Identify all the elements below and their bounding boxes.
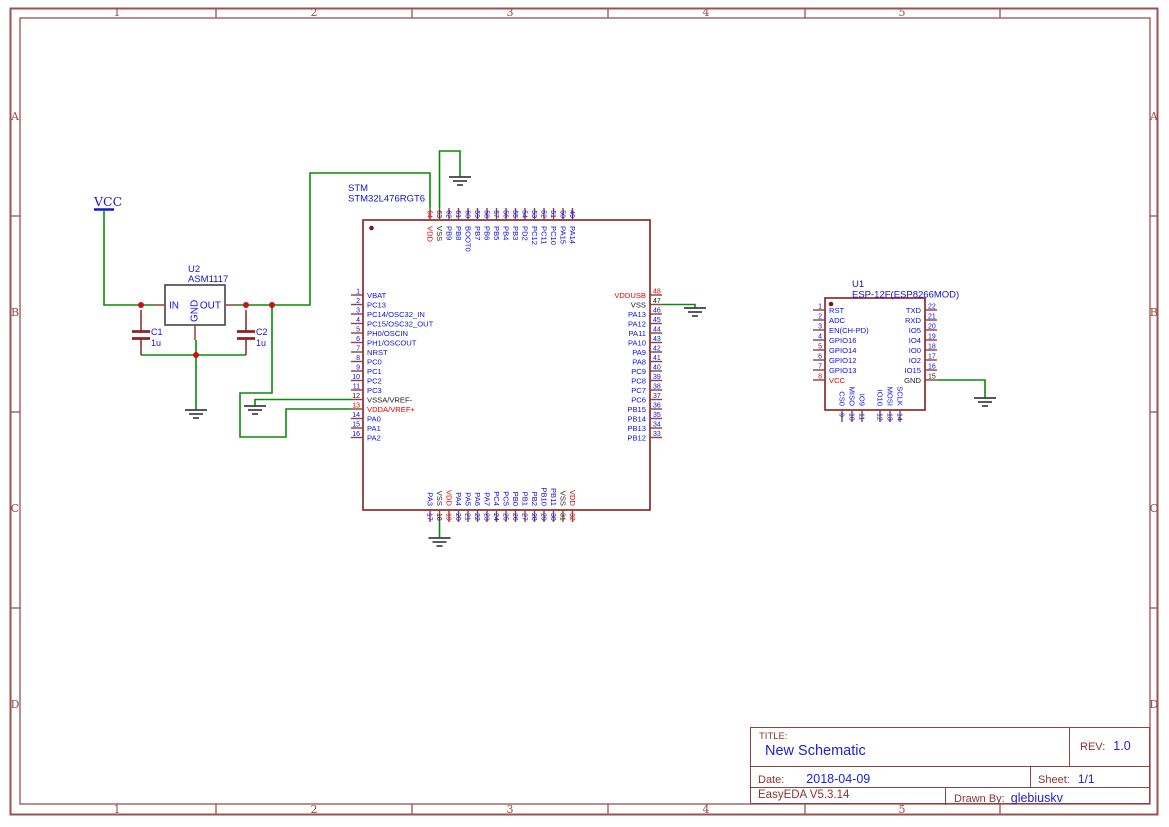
- pin-number: 51: [549, 210, 556, 218]
- pin-number: 15: [352, 422, 360, 429]
- pin-number: 32: [568, 513, 575, 521]
- pin-number: 12: [876, 413, 883, 421]
- pin-name: IO5: [909, 326, 921, 335]
- pin-number: 42: [653, 346, 661, 353]
- component-designator: U1: [852, 279, 864, 290]
- pin-name: MOSI: [886, 387, 895, 406]
- pin-number: 46: [653, 308, 661, 315]
- title-label: TITLE:: [759, 731, 788, 742]
- pin-name: NRST: [367, 348, 388, 357]
- capacitor-ref: C1: [151, 327, 163, 337]
- junction-dot: [243, 302, 249, 308]
- pin-name: GND: [904, 376, 921, 385]
- pin-number: 16: [352, 431, 360, 438]
- wire: [104, 211, 153, 305]
- wire: [240, 305, 351, 437]
- pin-number: 39: [653, 374, 661, 381]
- pin-name: GPIO12: [829, 356, 856, 365]
- pin-name: PA13: [628, 310, 646, 319]
- pin-name: PA12: [628, 320, 646, 329]
- pin-number: 18: [435, 513, 442, 521]
- pin-name: VDD: [568, 490, 577, 507]
- pin-number: 24: [492, 513, 499, 521]
- pin-name: PB2: [530, 492, 539, 506]
- pin-number: 13: [352, 403, 360, 410]
- date-value[interactable]: 2018-04-09: [806, 772, 870, 786]
- pin-number: 6: [818, 354, 822, 361]
- pin-name: VSS: [435, 491, 444, 506]
- wire: [937, 380, 985, 398]
- pin-number: 17: [928, 354, 936, 361]
- pin-number: 25: [502, 513, 509, 521]
- pin-name: PC9: [631, 367, 646, 376]
- date-label: Date:: [758, 774, 784, 786]
- pin-name: TXD: [906, 306, 922, 315]
- wire: [440, 151, 461, 208]
- pin-name: PB8: [454, 226, 463, 240]
- pin-name: VBAT: [367, 291, 387, 300]
- pin-name: CS0: [838, 391, 847, 406]
- pin-name: PC13: [367, 301, 386, 310]
- pin-name: PC12: [530, 226, 539, 245]
- rev-cell: REV:1.0: [1069, 728, 1152, 766]
- pin-name: IO9: [858, 394, 867, 406]
- pin-number: 29: [540, 513, 547, 521]
- pin-number: 14: [352, 412, 360, 419]
- regulator-pin-name: OUT: [200, 301, 221, 312]
- rev-value[interactable]: 1.0: [1113, 739, 1130, 753]
- pin-number: 21: [464, 513, 471, 521]
- pin-name: PA6: [473, 492, 482, 506]
- pin-number: 52: [540, 210, 547, 218]
- pin-name: VDDUSB: [614, 291, 646, 300]
- pin-name: VSSA/VREF-: [367, 396, 413, 405]
- pin-name: PC0: [367, 358, 382, 367]
- pin-number: 16: [928, 364, 936, 371]
- pin-number: 11: [353, 384, 360, 391]
- pin-name: PC7: [631, 386, 646, 395]
- schematic-title[interactable]: New Schematic: [765, 743, 866, 759]
- pin-name: PB4: [502, 226, 511, 240]
- pin-number: 49: [568, 210, 575, 218]
- pin-number: 3: [818, 324, 822, 331]
- pin-number: 56: [502, 210, 509, 218]
- pin-number: 22: [473, 513, 480, 521]
- schematic-sheet: 1122334455AABBCCDDVCCC11uC21uINOUTGNDU2A…: [0, 0, 1169, 827]
- pin-number: 33: [653, 431, 661, 438]
- pin-number: 9: [356, 365, 360, 372]
- pin1-marker: [369, 226, 374, 231]
- pin-number: 8: [818, 374, 822, 381]
- pin-name: IO15: [905, 366, 921, 375]
- pin-number: 21: [928, 314, 936, 321]
- frame-column-label-bottom: 4: [703, 803, 710, 816]
- pin-name: PC14/OSC32_IN: [367, 310, 425, 319]
- pin-name: ADC: [829, 316, 846, 325]
- pin-number: 11: [858, 413, 865, 420]
- drawn-by-label: Drawn By:: [954, 793, 1005, 805]
- pin-name: PB13: [627, 424, 646, 433]
- pin-number: 61: [454, 210, 461, 218]
- pin-name: VDDA/VREF+: [367, 405, 415, 414]
- pin-number: 64: [426, 210, 433, 218]
- sheet-field: Sheet:1/1: [1038, 770, 1095, 788]
- frame-column-label-top: 1: [114, 6, 121, 19]
- pin-name: PA3: [426, 492, 435, 506]
- pin-number: 8: [356, 355, 360, 362]
- pin-number: 62: [445, 210, 452, 218]
- junction-dot: [193, 352, 199, 358]
- pin-number: 59: [473, 210, 480, 218]
- pin-name: IO4: [909, 336, 921, 345]
- drawn-by-field: Drawn By:glebiuskv: [954, 789, 1063, 807]
- pin-name: PB0: [511, 492, 520, 506]
- capacitor-value: 1u: [256, 338, 266, 348]
- pin-number: 10: [848, 413, 855, 421]
- pin-name: PB10: [540, 487, 549, 506]
- frame-column-label-bottom: 2: [311, 803, 318, 816]
- schematic-canvas[interactable]: 1122334455AABBCCDDVCCC11uC21uINOUTGNDU2A…: [0, 0, 1169, 827]
- pin-name: PC10: [549, 226, 558, 245]
- pin-number: 14: [896, 413, 903, 421]
- frame-row-label-right: C: [1150, 502, 1158, 515]
- pin-number: 12: [352, 393, 360, 400]
- pin-number: 50: [559, 210, 566, 218]
- title-block-row-software: EasyEDA V5.3.14 Drawn By:glebiuskv: [751, 788, 1149, 805]
- pin-number: 18: [928, 344, 936, 351]
- drawn-by-cell: Drawn By:glebiuskv: [945, 788, 1152, 805]
- pin-name: VSS: [559, 491, 568, 506]
- pin-name: PA1: [367, 424, 381, 433]
- drawn-by-value[interactable]: glebiuskv: [1011, 791, 1063, 805]
- pin-number: 55: [511, 210, 518, 218]
- pin-number: 27: [521, 513, 528, 521]
- frame-row-label-left: D: [11, 698, 20, 711]
- regulator-pin-name: GND: [190, 300, 201, 322]
- pin-name: PH0/OSCIN: [367, 329, 408, 338]
- pin-name: PA7: [483, 492, 492, 506]
- pin-name: PC2: [367, 377, 382, 386]
- title-block: TITLE: New Schematic REV:1.0 Date:2018-0…: [750, 727, 1150, 804]
- pin-name: PA5: [464, 492, 473, 506]
- pin-number: 54: [521, 210, 528, 218]
- pin-number: 2: [356, 298, 360, 305]
- pin-name: PA10: [628, 339, 646, 348]
- vcc-net-label: VCC: [93, 194, 122, 209]
- pin-name: MISO: [848, 387, 857, 407]
- pin-number: 36: [653, 403, 661, 410]
- pin-name: PB5: [492, 226, 501, 240]
- pin-name: VCC: [829, 376, 846, 385]
- pin-name: PC6: [631, 396, 646, 405]
- pin-name: IO2: [909, 356, 921, 365]
- pin-number: 58: [483, 210, 490, 218]
- pin-name: PA9: [632, 348, 646, 357]
- pin-name: PB14: [627, 415, 646, 424]
- frame-column-label-top: 3: [507, 6, 514, 19]
- pin-name: IO10: [876, 390, 885, 406]
- pin-name: VDD: [426, 226, 435, 243]
- pin-name: PB12: [627, 434, 646, 443]
- pin-number: 20: [928, 324, 936, 331]
- pin-number: 37: [653, 393, 661, 400]
- pin-name: PB1: [521, 492, 530, 506]
- pin-name: PA8: [632, 358, 646, 367]
- frame-row-label-left: A: [10, 110, 20, 123]
- pin-name: IO0: [909, 346, 921, 355]
- pin-name: GPIO13: [829, 366, 856, 375]
- component-designator: STM: [348, 183, 368, 194]
- frame-column-label-bottom: 1: [114, 803, 121, 816]
- pin-name: PA15: [559, 226, 568, 244]
- pin-name: RXD: [905, 316, 922, 325]
- pin-number: 10: [352, 374, 360, 381]
- pin-number: 23: [483, 513, 490, 521]
- capacitor-value: 1u: [151, 338, 161, 348]
- capacitor-ref: C2: [256, 327, 268, 337]
- software-version: EasyEDA V5.3.14: [758, 789, 849, 801]
- pin-name: PC8: [631, 377, 646, 386]
- pin-name: PA0: [367, 415, 381, 424]
- sheet-cell: Sheet:1/1: [1030, 767, 1152, 787]
- sheet-label: Sheet:: [1038, 774, 1070, 786]
- pin-name: SCLK: [896, 386, 905, 406]
- pin-name: BOOT0: [464, 226, 473, 252]
- pin-name: PA2: [367, 434, 381, 443]
- pin-number: 6: [356, 336, 360, 343]
- sheet-value[interactable]: 1/1: [1078, 772, 1095, 786]
- pin-name: PC1: [367, 367, 382, 376]
- pin-name: PA14: [568, 226, 577, 244]
- pin-number: 1: [818, 304, 822, 311]
- title-block-row-date: Date:2018-04-09 Sheet:1/1: [751, 767, 1149, 788]
- pin-number: 63: [435, 210, 442, 218]
- pin-number: 5: [818, 344, 822, 351]
- pin-number: 7: [356, 346, 360, 353]
- pin-number: 30: [549, 513, 556, 521]
- pin-name: PC5: [502, 491, 511, 506]
- pin-name: PH1/OSCOUT: [367, 339, 417, 348]
- component-part-number: STM32L476RGT6: [348, 194, 425, 205]
- pin-number: 17: [426, 513, 433, 521]
- pin-name: PC4: [492, 491, 501, 506]
- component-part-number: ESP-12F(ESP8266MOD): [852, 290, 959, 301]
- pin-number: 44: [653, 327, 661, 334]
- pin-number: 9: [838, 413, 845, 417]
- pin-name: PC11: [540, 226, 549, 244]
- pin-name: PC15/OSC32_OUT: [367, 320, 434, 329]
- pin-number: 53: [530, 210, 537, 218]
- pin-number: 41: [653, 355, 661, 362]
- pin-number: 38: [653, 384, 661, 391]
- pin-number: 13: [886, 413, 893, 421]
- junction-dot: [269, 302, 275, 308]
- frame-column-label-top: 2: [311, 6, 318, 19]
- pin-number: 35: [653, 412, 661, 419]
- frame-row-label-right: B: [1150, 306, 1158, 319]
- pin-name: PB15: [627, 405, 646, 414]
- frame-column-label-bottom: 3: [507, 803, 514, 816]
- pin-number: 47: [653, 298, 661, 305]
- pin-number: 7: [818, 364, 822, 371]
- pin-name: GPIO16: [829, 336, 856, 345]
- date-field: Date:2018-04-09: [758, 770, 870, 788]
- pin-number: 28: [530, 513, 537, 521]
- pin-name: PA11: [629, 329, 646, 338]
- pin-name: RST: [829, 306, 845, 315]
- frame-row-label-left: B: [11, 306, 19, 319]
- pin-number: 2: [818, 314, 822, 321]
- pin-number: 4: [818, 334, 822, 341]
- pin-name: PB6: [483, 226, 492, 240]
- pin-number: 40: [653, 365, 661, 372]
- pin-number: 57: [492, 210, 499, 218]
- rev-field: REV:1.0: [1080, 739, 1131, 753]
- pin-number: 60: [464, 210, 471, 218]
- pin-number: 22: [928, 304, 936, 311]
- pin-number: 26: [511, 513, 518, 521]
- wire: [255, 400, 351, 407]
- pin-name: VDD: [445, 490, 454, 507]
- pin-number: 1: [356, 289, 360, 296]
- pin-number: 19: [928, 334, 936, 341]
- pin-name: PB7: [473, 226, 482, 240]
- pin-number: 48: [653, 289, 661, 296]
- pin-number: 5: [356, 327, 360, 334]
- pin-number: 34: [653, 422, 661, 429]
- pin-name: PB9: [445, 226, 454, 240]
- pin-name: PB11: [549, 488, 558, 506]
- junction-dot: [138, 302, 144, 308]
- pin-number: 15: [928, 374, 936, 381]
- pin-number: 31: [559, 513, 566, 521]
- pin-number: 4: [356, 317, 360, 324]
- frame-row-label-left: C: [11, 502, 19, 515]
- pin-number: 3: [356, 308, 360, 315]
- frame-column-label-top: 4: [703, 6, 710, 19]
- pin-name: PC3: [367, 386, 382, 395]
- pin-number: 19: [445, 513, 452, 521]
- title-block-row-title: TITLE: New Schematic REV:1.0: [751, 728, 1149, 767]
- rev-label: REV:: [1080, 741, 1105, 753]
- pin-number: 43: [653, 336, 661, 343]
- pin-name: PA4: [454, 492, 463, 506]
- chip-body-stm: [363, 220, 650, 510]
- regulator-pin-name: IN: [169, 301, 179, 312]
- pin-number: 20: [454, 513, 461, 521]
- pin-name: PB3: [511, 226, 520, 240]
- pin-name: EN(CH-PD): [829, 326, 869, 335]
- pin-name: GPIO14: [829, 346, 856, 355]
- component-part-number: ASM1117: [188, 274, 228, 285]
- frame-row-label-right: A: [1149, 110, 1159, 123]
- pin-number: 45: [653, 317, 661, 324]
- frame-row-label-right: D: [1149, 698, 1158, 711]
- pin-name: PD2: [521, 226, 530, 241]
- pin-name: VSS: [435, 226, 444, 241]
- frame-column-label-top: 5: [899, 6, 906, 19]
- pin-name: VSS: [631, 301, 646, 310]
